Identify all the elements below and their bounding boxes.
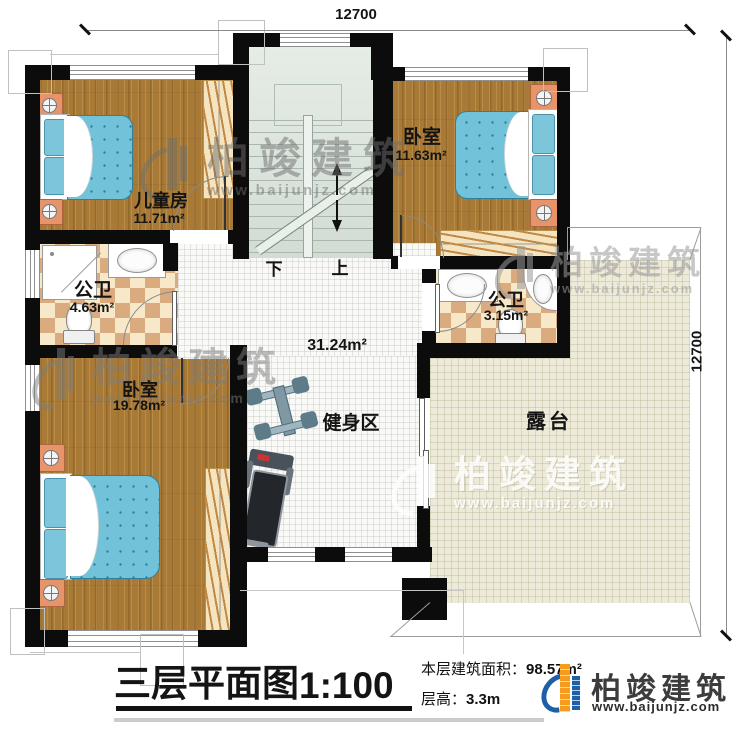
door-leaf — [172, 291, 177, 346]
parapet-line — [567, 227, 700, 228]
room-area-bath-left: 4.63m² — [42, 300, 142, 314]
floor-area-label: 本层建筑面积： — [421, 661, 526, 678]
plan-scale: 1:100 — [299, 665, 394, 707]
room-label-kids: 儿童房 — [111, 192, 211, 210]
plan-title-row: 三层平面图 1:100 — [114, 663, 394, 707]
stair-up-label: 上 — [324, 260, 356, 277]
floor-plan-canvas: 柏竣建筑 www.baijunjz.com 柏竣建筑 www.baijunjz.… — [0, 0, 750, 729]
shower-drain — [50, 252, 54, 256]
logo-tower-orange — [560, 664, 570, 712]
eave-line — [240, 590, 464, 591]
plan-title: 三层平面图 — [114, 653, 299, 707]
column — [402, 578, 447, 620]
room-area-bath-right: 3.15m² — [456, 308, 556, 322]
nightstand-knob — [42, 98, 57, 113]
door-opening — [422, 283, 436, 331]
headboard-cushion — [532, 155, 555, 195]
watermark-name: 柏竣建筑 — [550, 246, 706, 279]
headboard-cushion — [44, 478, 68, 528]
window — [345, 547, 392, 562]
window — [405, 67, 528, 81]
stair-down-label: 下 — [258, 261, 290, 278]
floor-height-value: 3.3m — [466, 691, 500, 708]
dimension-line-top — [85, 30, 691, 31]
watermark-name: 柏竣建筑 — [454, 456, 634, 493]
nightstand-knob — [536, 90, 552, 106]
nightstand-knob — [42, 204, 57, 219]
brand-building-icon — [143, 138, 199, 198]
eave-outline — [218, 20, 265, 65]
title-underline-light — [114, 718, 544, 722]
title-underline — [116, 706, 412, 711]
sliding-door — [419, 398, 425, 457]
eave-line — [463, 590, 464, 654]
room-area-kids: 11.71m² — [109, 211, 209, 225]
brand-url: www.baijunjz.com — [592, 699, 720, 714]
dumbbell-plate — [253, 422, 272, 441]
window — [280, 33, 350, 47]
watermark-url: www.baijunjz.com — [550, 282, 706, 295]
floor-height-label: 层高： — [421, 691, 466, 708]
logo-tower-blue — [572, 676, 580, 710]
headboard-cushion — [44, 529, 68, 579]
toilet-tank — [63, 330, 95, 344]
brand-logo-icon — [543, 662, 585, 716]
eave-outline — [543, 48, 588, 92]
brand-building-icon — [394, 456, 446, 514]
nightstand-knob — [43, 450, 59, 466]
wall — [557, 67, 570, 358]
watermark-url: www.baijunjz.com — [207, 183, 415, 198]
dimension-top-value: 12700 — [320, 6, 392, 23]
room-area-bedroom-bottom: 19.78m² — [89, 398, 189, 412]
dimension-right-value: 12700 — [689, 316, 706, 388]
watermark: 柏竣建筑 www.baijunjz.com — [394, 456, 714, 520]
room-label-terrace: 露台 — [499, 412, 599, 432]
floor-height-line: 层高：3.3m — [421, 692, 500, 707]
eave-line — [50, 54, 218, 55]
room-label-bedroom-top: 卧室 — [372, 128, 472, 147]
sink-basin — [117, 248, 157, 273]
nightstand-knob — [536, 205, 552, 221]
door-opening — [170, 230, 228, 244]
parapet-line — [390, 636, 701, 637]
hall-area-label: 31.24m² — [287, 338, 387, 354]
stair-down-arrow-icon — [332, 220, 342, 232]
headboard-cushion — [44, 119, 66, 156]
window — [70, 65, 195, 80]
brand-building-icon — [497, 246, 543, 296]
room-label-bath-left: 公卫 — [43, 281, 143, 300]
brand-building-icon — [36, 348, 84, 408]
door-leaf — [435, 284, 440, 333]
window — [25, 250, 40, 298]
door-leaf — [400, 215, 402, 257]
nightstand-knob — [43, 585, 59, 601]
stair-down-arrow-stem — [336, 200, 338, 221]
wall — [417, 343, 570, 358]
wall — [417, 358, 430, 398]
room-area-bedroom-top: 11.63m² — [371, 148, 471, 162]
eave-outline — [10, 608, 45, 655]
dimension-line-right — [726, 36, 727, 637]
window — [268, 547, 315, 562]
room-label-gym: 健身区 — [301, 414, 401, 433]
watermark-url: www.baijunjz.com — [454, 496, 634, 511]
headboard-cushion — [44, 157, 66, 195]
wall — [163, 243, 178, 271]
eave-outline — [8, 50, 52, 94]
headboard-cushion — [532, 114, 555, 154]
